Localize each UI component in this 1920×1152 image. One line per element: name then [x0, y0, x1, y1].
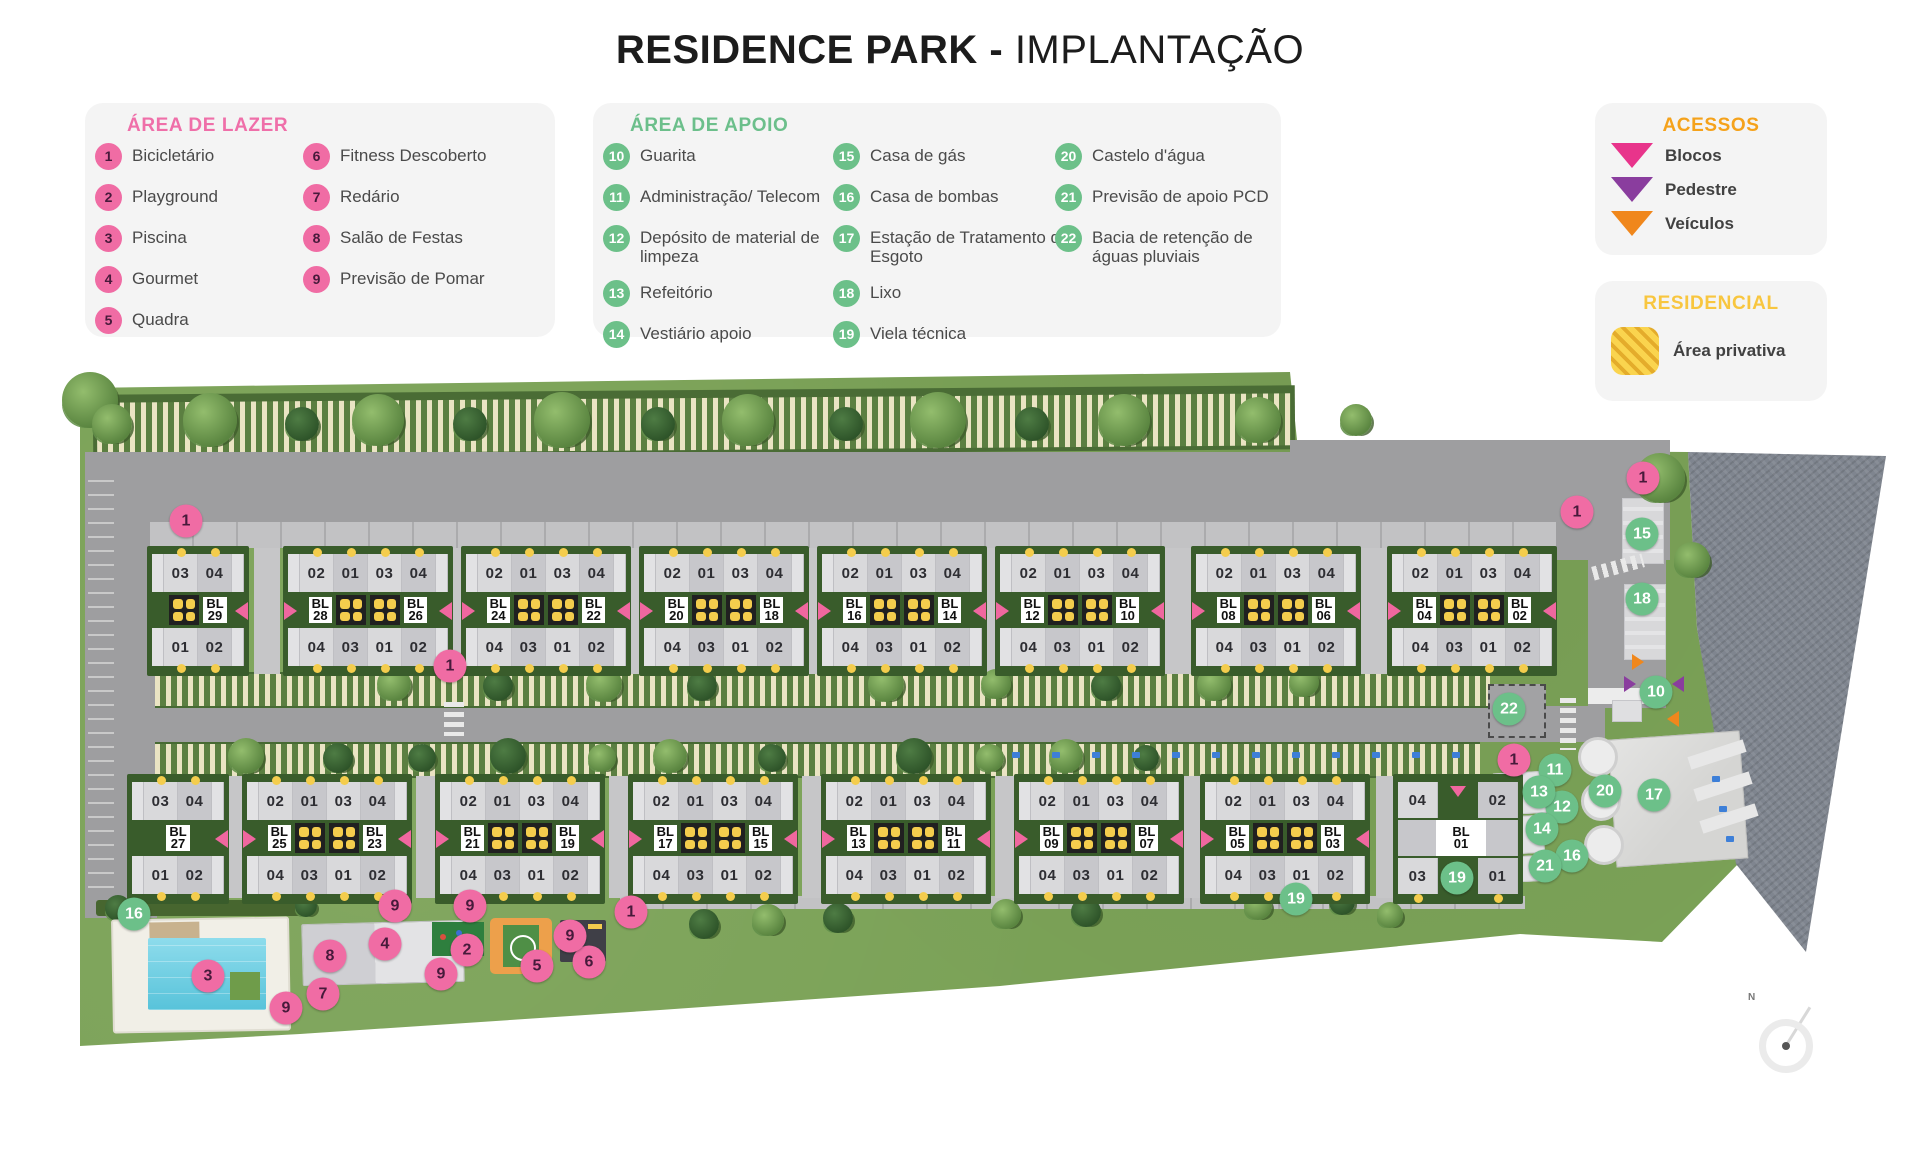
- entry-dot-icon: [1025, 548, 1034, 557]
- unit-cell-03: 03: [724, 554, 758, 592]
- tree-icon: [976, 744, 1004, 772]
- legend-item-label: Castelo d'água: [1092, 143, 1205, 166]
- block-band: BL 28BL 26: [288, 592, 448, 628]
- moto-parking-icon: [1172, 752, 1180, 758]
- block-edge: [781, 856, 793, 894]
- entry-dot-icon: [374, 776, 383, 785]
- unit-cell-03: 03: [546, 554, 580, 592]
- entry-dot-icon: [1059, 664, 1068, 673]
- compass-icon: [1759, 1019, 1813, 1073]
- map-marker-19: 19: [1280, 883, 1313, 916]
- entry-dot-icon: [1146, 892, 1155, 901]
- legend-badge-10: 10: [603, 143, 630, 170]
- entry-dot-icon: [847, 664, 856, 673]
- access-lane: [416, 776, 436, 898]
- acessos-item-label: Veículos: [1665, 214, 1734, 234]
- entry-dot-icon: [306, 776, 315, 785]
- central-parking-lower: [155, 742, 1480, 778]
- unit-cell-01: 01: [486, 782, 520, 820]
- block-edge: [633, 782, 645, 820]
- legend-item: 6Fitness Descoberto: [303, 143, 486, 170]
- tree-icon: [1674, 542, 1710, 578]
- block-edge: [792, 554, 804, 592]
- legend-item: 5Quadra: [95, 307, 218, 334]
- unit-cell-01: 01: [334, 554, 368, 592]
- entry-dot-icon: [851, 892, 860, 901]
- block-bl-27: 03040102BL 27: [132, 780, 224, 898]
- moto-parking-icon: [1212, 752, 1220, 758]
- block-edge: [1353, 856, 1365, 894]
- unit-cell-01: 01: [906, 856, 940, 894]
- legend-item-label: Previsão de apoio PCD: [1092, 184, 1269, 207]
- block-edge: [970, 554, 982, 592]
- entry-dot-icon: [1078, 892, 1087, 901]
- legend-badge-8: 8: [303, 225, 330, 252]
- unit-cell-01: 01: [690, 554, 724, 592]
- unit-cell-02: 02: [178, 856, 212, 894]
- block-edge: [1540, 554, 1552, 592]
- unit-cell-04: 04: [747, 782, 781, 820]
- entry-dot-icon: [915, 548, 924, 557]
- legend-column: 6Fitness Descoberto7Redário8Salão de Fes…: [303, 143, 486, 307]
- entry-dot-icon: [559, 548, 568, 557]
- entry-dot-icon: [669, 664, 678, 673]
- block-access-icon: [398, 830, 411, 848]
- legend-item: 12Depósito de material de limpeza: [603, 225, 845, 266]
- entry-dot-icon: [347, 548, 356, 557]
- unit-entry-icon: [548, 595, 578, 625]
- entry-dot-icon: [1264, 776, 1273, 785]
- unit-cell-02: 02: [1478, 782, 1518, 818]
- access-lane: [802, 776, 822, 898]
- legend-item-label: Estação de Tratamento de Esgoto: [870, 225, 1070, 266]
- unit-entry-icon: [1287, 823, 1317, 853]
- entry-dot-icon: [415, 548, 424, 557]
- unit-cell-04: 04: [554, 782, 588, 820]
- block-label-02: BL 02: [1508, 597, 1531, 624]
- unit-cell-03: 03: [520, 782, 554, 820]
- unit-cell-02: 02: [452, 782, 486, 820]
- entry-dot-icon: [533, 892, 542, 901]
- legend-badge-19: 19: [833, 321, 860, 348]
- legend-item-label: Playground: [132, 184, 218, 207]
- map-marker-15: 15: [1626, 518, 1659, 551]
- block-edge: [1019, 782, 1031, 820]
- block-edge: [1019, 856, 1031, 894]
- unit-cell-02: 02: [1031, 782, 1065, 820]
- unit-cell-04: 04: [580, 554, 614, 592]
- tree-icon: [352, 394, 404, 446]
- legend-item-label: Viela técnica: [870, 321, 966, 344]
- map-marker-9: 9: [379, 890, 412, 923]
- block-edge: [614, 628, 626, 666]
- legend-badge-20: 20: [1055, 143, 1082, 170]
- legend-item-label: Lixo: [870, 280, 901, 303]
- unit-cell-01: 01: [368, 628, 402, 666]
- entry-dot-icon: [1112, 776, 1121, 785]
- unit-entry-icon: [1474, 595, 1504, 625]
- block-label-21: BL 21: [461, 825, 484, 852]
- entry-dot-icon: [533, 776, 542, 785]
- unit-cell-02: 02: [259, 782, 293, 820]
- entry-dot-icon: [593, 548, 602, 557]
- legend-badge-7: 7: [303, 184, 330, 211]
- legend-item: 18Lixo: [833, 280, 1070, 307]
- entry-dot-icon: [726, 892, 735, 901]
- block-bl-09-07: 0201030404030102BL 09BL 07: [1019, 780, 1179, 898]
- block-label-13: BL 13: [847, 825, 870, 852]
- entry-dot-icon: [340, 892, 349, 901]
- unit-cell-04: 04: [645, 856, 679, 894]
- unit-cell-03: 03: [512, 628, 546, 666]
- car-parking-icon: [1719, 806, 1727, 812]
- compass-center-icon: [1782, 1042, 1790, 1050]
- unit-cell-02: 02: [554, 856, 588, 894]
- guardhouse: [1612, 700, 1642, 722]
- block-edge: [1000, 628, 1012, 666]
- block-bl-17-15: 0201030404030102BL 17BL 15: [633, 780, 793, 898]
- block-edge: [588, 856, 600, 894]
- legend-acessos-title: ACESSOS: [1595, 115, 1827, 137]
- entry-dot-icon: [1255, 664, 1264, 673]
- legend-item: 2Playground: [95, 184, 218, 211]
- legend-column: 10Guarita11Administração/ Telecom12Depós…: [603, 143, 845, 362]
- unit-entry-icon: [514, 595, 544, 625]
- block-label-05: BL 05: [1226, 825, 1249, 852]
- block-edge: [152, 628, 164, 666]
- moto-parking-icon: [1292, 752, 1300, 758]
- unit-cell-03: 03: [713, 782, 747, 820]
- block-label-09: BL 09: [1040, 825, 1063, 852]
- map-marker-9: 9: [554, 920, 587, 953]
- unit-cell-04: 04: [1398, 782, 1438, 818]
- unit-cell-01: 01: [1080, 628, 1114, 666]
- unit-cell-01: 01: [1251, 782, 1285, 820]
- unit-entry-icon: [726, 595, 756, 625]
- row1-access-sidewalk: [150, 522, 1556, 548]
- legend-item-label: Guarita: [640, 143, 696, 166]
- block-edge: [232, 554, 244, 592]
- entry-dot-icon: [726, 776, 735, 785]
- block-band: BL 24BL 22: [466, 592, 626, 628]
- moto-parking-icon: [1012, 752, 1020, 758]
- entry-dot-icon: [191, 776, 200, 785]
- legend-badge-14: 14: [603, 321, 630, 348]
- map-marker-10: 10: [1640, 676, 1673, 709]
- tree-icon: [722, 394, 774, 446]
- block-label-07: BL 07: [1135, 825, 1158, 852]
- block-edge: [1353, 782, 1365, 820]
- legend-item: 13Refeitório: [603, 280, 845, 307]
- unit-entry-icon: [1067, 823, 1097, 853]
- legend-badge-11: 11: [603, 184, 630, 211]
- entry-dot-icon: [847, 548, 856, 557]
- block-access-icon: [1543, 602, 1556, 620]
- entry-dot-icon: [1093, 664, 1102, 673]
- pedestre-access-icon: [1624, 676, 1636, 692]
- unit-cell-01: 01: [1276, 628, 1310, 666]
- block-label-14: BL 14: [938, 597, 961, 624]
- block-label-17: BL 17: [654, 825, 677, 852]
- block-edge: [440, 856, 452, 894]
- entry-dot-icon: [915, 664, 924, 673]
- map-marker-9: 9: [454, 890, 487, 923]
- block-edge: [781, 782, 793, 820]
- unit-cell-02: 02: [198, 628, 232, 666]
- legend-item: 19Viela técnica: [833, 321, 1070, 348]
- entry-dot-icon: [949, 548, 958, 557]
- entry-dot-icon: [499, 776, 508, 785]
- playground-toy-icon: [440, 934, 446, 940]
- block-edge: [466, 554, 478, 592]
- block-access-icon: [822, 830, 835, 848]
- tree-icon: [896, 738, 932, 774]
- unit-cell-03: 03: [906, 782, 940, 820]
- legend-badge-2: 2: [95, 184, 122, 211]
- tree-icon: [453, 407, 487, 441]
- unit-cell-01: 01: [327, 856, 361, 894]
- access-lane: [609, 776, 629, 898]
- unit-cell-01: 01: [1065, 782, 1099, 820]
- block-bl-13-11: 0201030404030102BL 13BL 11: [826, 780, 986, 898]
- block-edge: [247, 856, 259, 894]
- block-edge: [212, 782, 224, 820]
- unit-cell-03: 03: [690, 628, 724, 666]
- block-access-icon: [462, 602, 475, 620]
- entry-dot-icon: [658, 892, 667, 901]
- block-access-icon: [1450, 786, 1466, 797]
- legend-area-de-apoio: ÁREA DE APOIO 10Guarita11Administração/ …: [593, 103, 1281, 337]
- entry-dot-icon: [1059, 548, 1068, 557]
- map-marker-1: 1: [1561, 496, 1594, 529]
- block-label-15: BL 15: [749, 825, 772, 852]
- block-edge: [792, 628, 804, 666]
- legend-item: 3Piscina: [95, 225, 218, 252]
- tree-icon: [408, 744, 436, 772]
- entry-dot-icon: [737, 664, 746, 673]
- entry-dot-icon: [1417, 548, 1426, 557]
- legend-item-label: Fitness Descoberto: [340, 143, 486, 166]
- tree-icon: [910, 392, 966, 448]
- block-edge: [288, 554, 300, 592]
- block-band: BL 20BL 18: [644, 592, 804, 628]
- legend-column: 15Casa de gás16Casa de bombas17Estação d…: [833, 143, 1070, 362]
- legend-acessos: ACESSOS BlocosPedestreVeículos: [1595, 103, 1827, 255]
- access-triangle-icon: [1611, 143, 1653, 168]
- legend-item: 9Previsão de Pomar: [303, 266, 486, 293]
- unit-cell-04: 04: [1114, 554, 1148, 592]
- block-label-04: BL 04: [1413, 597, 1436, 624]
- legend-residencial-label: Área privativa: [1673, 341, 1785, 361]
- unit-cell-03: 03: [164, 554, 198, 592]
- legend-apoio-title: ÁREA DE APOIO: [630, 115, 788, 137]
- unit-cell-04: 04: [834, 628, 868, 666]
- unit-cell-02: 02: [758, 628, 792, 666]
- unit-cell-02: 02: [1506, 628, 1540, 666]
- entry-dot-icon: [1230, 892, 1239, 901]
- block-bl-04-02: 0201030404030102BL 04BL 02: [1392, 552, 1552, 670]
- block-edge: [614, 554, 626, 592]
- unit-cell-02: 02: [1319, 856, 1353, 894]
- unit-entry-icon: [370, 595, 400, 625]
- block-band: BL 25BL 23: [247, 820, 407, 856]
- entry-dot-icon: [760, 776, 769, 785]
- entry-dot-icon: [919, 892, 928, 901]
- legend-lazer-title: ÁREA DE LAZER: [127, 115, 288, 137]
- legend-item-label: Administração/ Telecom: [640, 184, 820, 207]
- entry-dot-icon: [491, 548, 500, 557]
- block-edge: [395, 856, 407, 894]
- block-edge: [440, 782, 452, 820]
- entry-dot-icon: [177, 664, 186, 673]
- block-band: BL 27: [132, 820, 224, 856]
- unit-cell-04: 04: [1319, 782, 1353, 820]
- block-access-icon: [436, 830, 449, 848]
- unit-cell-04: 04: [1012, 628, 1046, 666]
- legend-residencial-title: RESIDENCIAL: [1595, 293, 1827, 315]
- entry-dot-icon: [953, 892, 962, 901]
- unit-cell-02: 02: [936, 628, 970, 666]
- entry-dot-icon: [1112, 892, 1121, 901]
- entry-dot-icon: [1025, 664, 1034, 673]
- pool-lawn-patch: [230, 972, 260, 1000]
- map-marker-5: 5: [521, 950, 554, 983]
- unit-entry-icon: [295, 823, 325, 853]
- legend-item-label: Casa de bombas: [870, 184, 999, 207]
- unit-entry-icon: [1244, 595, 1274, 625]
- tree-icon: [1015, 407, 1049, 441]
- moto-parking-icon: [1332, 752, 1340, 758]
- entry-dot-icon: [1264, 892, 1273, 901]
- unit-entry-icon: [874, 823, 904, 853]
- unit-cell-04: 04: [1217, 856, 1251, 894]
- legend-badge-1: 1: [95, 143, 122, 170]
- block-edge: [974, 856, 986, 894]
- block-edge: [232, 628, 244, 666]
- entry-dot-icon: [771, 548, 780, 557]
- access-lane: [254, 548, 280, 674]
- unit-entry-icon: [908, 823, 938, 853]
- block-bl-29: 03040102BL 29: [152, 552, 244, 670]
- unit-cell-01: 01: [546, 628, 580, 666]
- legend-item-label: Quadra: [132, 307, 189, 330]
- block-bl-08-06: 0201030404030102BL 08BL 06: [1196, 552, 1356, 670]
- legend-column: 20Castelo d'água21Previsão de apoio PCD2…: [1055, 143, 1281, 280]
- tree-icon: [228, 738, 264, 774]
- block-access-icon: [977, 830, 990, 848]
- entry-dot-icon: [1332, 776, 1341, 785]
- legend-item-label: Salão de Festas: [340, 225, 463, 248]
- entry-dot-icon: [771, 664, 780, 673]
- unit-cell-03: 03: [1046, 628, 1080, 666]
- entry-dot-icon: [567, 776, 576, 785]
- map-marker-14: 14: [1526, 813, 1559, 846]
- block-band: BL 04BL 02: [1392, 592, 1552, 628]
- map-marker-2: 2: [451, 934, 484, 967]
- entry-dot-icon: [737, 548, 746, 557]
- unit-cell-02: 02: [300, 554, 334, 592]
- block-access-icon: [235, 602, 248, 620]
- block-edge: [1392, 628, 1404, 666]
- entry-dot-icon: [157, 892, 166, 901]
- moto-parking-icon: [1092, 752, 1100, 758]
- map-marker-1: 1: [1498, 744, 1531, 777]
- unit-cell-04: 04: [361, 782, 395, 820]
- entry-dot-icon: [1451, 548, 1460, 557]
- block-access-icon: [973, 602, 986, 620]
- unit-entry-icon: [488, 823, 518, 853]
- unit-cell-01: 01: [872, 782, 906, 820]
- block-bl-24-22: 0201030404030102BL 24BL 22: [466, 552, 626, 670]
- entry-dot-icon: [525, 548, 534, 557]
- acessos-item: Veículos: [1611, 211, 1737, 236]
- block-access-icon: [284, 602, 297, 620]
- unit-entry-icon: [1253, 823, 1283, 853]
- map-marker-9: 9: [425, 958, 458, 991]
- map-marker-3: 3: [192, 960, 225, 993]
- legend-item: 22Bacia de retenção de águas pluviais: [1055, 225, 1281, 266]
- unit-entry-icon: [336, 595, 366, 625]
- unit-cell-01: 01: [1478, 858, 1518, 894]
- unit-cell-02: 02: [361, 856, 395, 894]
- block-label-23: BL 23: [363, 825, 386, 852]
- legend-badge-13: 13: [603, 280, 630, 307]
- unit-cell-02: 02: [1114, 628, 1148, 666]
- entry-dot-icon: [703, 664, 712, 673]
- legend-badge-18: 18: [833, 280, 860, 307]
- implantation-plan-page: RESIDENCE PARK - IMPLANTAÇÃO ÁREA DE LAZ…: [0, 0, 1920, 1152]
- block-access-icon: [629, 830, 642, 848]
- block-edge: [247, 782, 259, 820]
- unit-cell-03: 03: [868, 628, 902, 666]
- block-access-icon: [215, 830, 228, 848]
- entry-dot-icon: [1494, 894, 1503, 903]
- car-parking-icon: [1712, 776, 1720, 782]
- legend-item-label: Redário: [340, 184, 400, 207]
- entry-dot-icon: [1289, 548, 1298, 557]
- tree-icon: [752, 904, 784, 936]
- block-label-12: BL 12: [1021, 597, 1044, 624]
- unit-cell-03: 03: [327, 782, 361, 820]
- unit-cell-03: 03: [902, 554, 936, 592]
- block-edge: [436, 554, 448, 592]
- unit-entry-icon: [169, 595, 199, 625]
- entry-dot-icon: [1221, 664, 1230, 673]
- west-road-parking-ticks: [88, 470, 114, 900]
- entry-dot-icon: [157, 776, 166, 785]
- fitness-equipment-icon: [588, 924, 602, 929]
- unit-cell-02: 02: [1310, 628, 1344, 666]
- legend-item: 8Salão de Festas: [303, 225, 486, 252]
- unit-cell-03: 03: [1099, 782, 1133, 820]
- entry-dot-icon: [692, 892, 701, 901]
- unit-entry-icon: [715, 823, 745, 853]
- unit-cell-02: 02: [940, 856, 974, 894]
- block-edge: [152, 554, 164, 592]
- unit-cell-01: 01: [512, 554, 546, 592]
- acessos-item: Blocos: [1611, 143, 1737, 168]
- block-access-icon: [1201, 830, 1214, 848]
- block-label-10: BL 10: [1116, 597, 1139, 624]
- entry-dot-icon: [885, 892, 894, 901]
- unit-cell-01: 01: [164, 628, 198, 666]
- block-edge: [974, 782, 986, 820]
- entry-dot-icon: [1044, 892, 1053, 901]
- entry-dot-icon: [313, 664, 322, 673]
- entry-dot-icon: [499, 892, 508, 901]
- unit-cell-03: 03: [1398, 858, 1438, 894]
- water-tank: [1584, 825, 1624, 865]
